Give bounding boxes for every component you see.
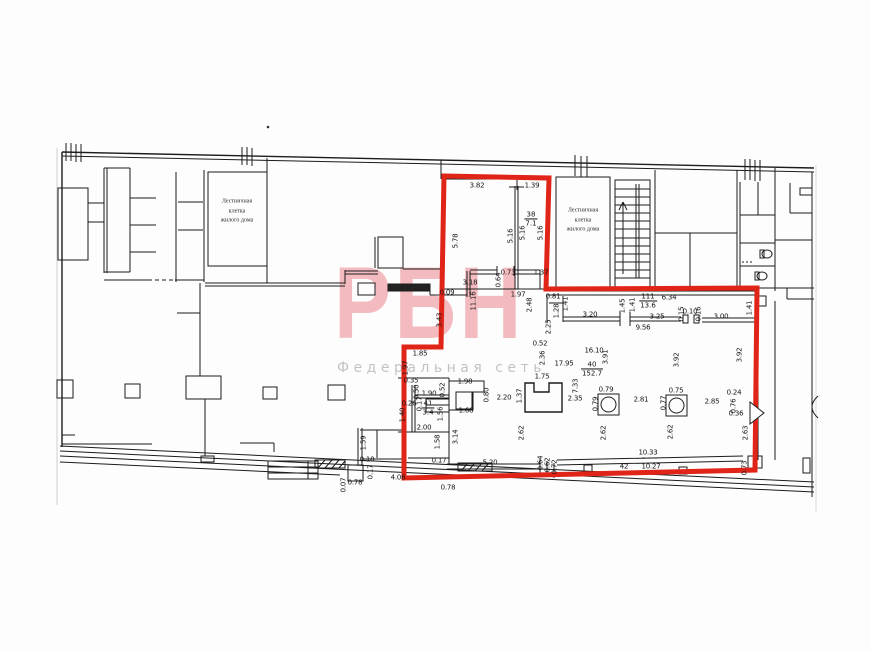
dimension-label: 1.40 bbox=[400, 408, 407, 423]
dimension-label: 10.27 bbox=[641, 464, 660, 471]
dimension-label: 1.41 bbox=[747, 301, 754, 316]
stairwell-label-line: Лестничная bbox=[221, 198, 254, 208]
dimension-label: 1.98 bbox=[458, 379, 473, 386]
dimension-label: 1.41 bbox=[630, 298, 637, 313]
dimension-label: 0.78 bbox=[441, 485, 456, 492]
dimension-label: 0.24 bbox=[727, 390, 742, 397]
dimension-label: 3.82 bbox=[470, 183, 485, 190]
dimension-label: 0.78 bbox=[348, 480, 363, 487]
dimension-label: 2.20 bbox=[497, 395, 512, 402]
dimension-label: 5.16 bbox=[508, 229, 515, 244]
dimension-label: 0.36 bbox=[729, 411, 744, 418]
dimension-label: 5.16 bbox=[520, 226, 527, 241]
dimension-labels-layer: 3.821.395.785.165.165.163.180.0911.160.6… bbox=[0, 0, 870, 652]
dimension-label: 42 bbox=[620, 464, 629, 471]
dimension-label: 1.37 bbox=[534, 270, 549, 277]
room-number: 38 bbox=[524, 210, 537, 219]
dimension-label: 10.33 bbox=[638, 450, 657, 457]
dimension-label: 0.81 bbox=[546, 294, 561, 301]
room-tag: 387.1 bbox=[524, 210, 537, 227]
dimension-label: 0.79 bbox=[599, 387, 614, 394]
room-area: 7.1 bbox=[524, 220, 537, 228]
dimension-label: 0.52 bbox=[440, 383, 447, 398]
dimension-label: 1.37 bbox=[517, 389, 524, 404]
dimension-label: 0.72 bbox=[552, 460, 559, 475]
dimension-label: 0.16 bbox=[696, 307, 703, 322]
stairwell-label: Лестничнаяклеткажилого дома bbox=[221, 198, 254, 227]
room-number: 111 bbox=[639, 292, 657, 301]
room-tag: 11113.6 bbox=[639, 292, 657, 309]
dimension-label: 0.75 bbox=[669, 388, 684, 395]
dimension-label: 2.00 bbox=[417, 425, 432, 432]
dimension-label: 2.81 bbox=[634, 397, 649, 404]
dimension-label: 0.17 bbox=[368, 465, 375, 480]
dimension-label: 0.77 bbox=[661, 396, 668, 411]
dimension-label: 1.41 bbox=[563, 297, 570, 312]
dimension-label: 0.17 bbox=[432, 458, 447, 465]
room-area: 13.6 bbox=[639, 302, 657, 310]
dimension-label: 3.92 bbox=[674, 353, 681, 368]
dimension-label: 5.16 bbox=[538, 226, 545, 241]
dimension-label: 5.78 bbox=[453, 234, 460, 249]
stairwell-label-line: клетка bbox=[567, 216, 600, 226]
stairwell-label-line: клетка bbox=[221, 207, 254, 217]
room-area: 3.4 bbox=[421, 409, 434, 417]
room-tag: 40152.7 bbox=[581, 360, 603, 377]
dimension-label: 1.85 bbox=[413, 351, 428, 358]
dimension-label: 5.20 bbox=[483, 460, 498, 467]
dimension-label: 0.80 bbox=[484, 388, 491, 403]
room-tag: 413.4 bbox=[421, 399, 434, 416]
dimension-label: 0.09 bbox=[440, 290, 455, 297]
dimension-label: 2.25 bbox=[546, 320, 553, 335]
dimension-label: 3.00 bbox=[714, 314, 729, 321]
dimension-label: 6.34 bbox=[662, 295, 677, 302]
dimension-label: 0.18 bbox=[360, 457, 375, 464]
dimension-label: 2.62 bbox=[601, 426, 608, 441]
dimension-label: 1.58 bbox=[435, 435, 442, 450]
scanned-floor-plan: РБН Федеральная сеть bbox=[0, 0, 870, 652]
room-area: 152.7 bbox=[581, 370, 603, 378]
dimension-label: 2.48 bbox=[527, 298, 534, 313]
dimension-label: 0.26 bbox=[402, 401, 417, 408]
dimension-label: 2.36 bbox=[540, 351, 547, 366]
dimension-label: 3.43 bbox=[437, 313, 444, 328]
dimension-label: 0.73 bbox=[742, 461, 749, 476]
dimension-label: 0.07 bbox=[341, 478, 348, 493]
dimension-label: 3.18 bbox=[463, 280, 478, 287]
dimension-label: 1.97 bbox=[511, 292, 526, 299]
dimension-label: 2.62 bbox=[519, 426, 526, 441]
dimension-label: 1.28 bbox=[554, 304, 561, 319]
dimension-label: 3.92 bbox=[737, 348, 744, 363]
dimension-label: 2.63 bbox=[743, 426, 750, 441]
dimension-label: 1.75 bbox=[535, 374, 550, 381]
stairwell-label-line: Лестничная bbox=[567, 207, 600, 217]
dimension-label: 0.52 bbox=[533, 341, 548, 348]
dimension-label: 1.97 bbox=[403, 361, 410, 376]
dimension-label: 2.35 bbox=[568, 396, 583, 403]
dimension-label: 1.90 bbox=[422, 391, 437, 398]
dimension-label: 17.95 bbox=[554, 361, 573, 368]
dimension-label: 2.62 bbox=[668, 425, 675, 440]
dimension-label: 0.73 bbox=[501, 270, 516, 277]
dimension-label: 3.25 bbox=[650, 314, 665, 321]
dimension-label: 7.33 bbox=[573, 379, 580, 394]
dimension-label: 3.91 bbox=[603, 350, 610, 365]
dimension-label: 3.14 bbox=[453, 430, 460, 445]
stairwell-label-line: жилого дома bbox=[567, 226, 600, 236]
dimension-label: 3.20 bbox=[583, 312, 598, 319]
dimension-label: 1.45 bbox=[620, 299, 627, 314]
room-number: 40 bbox=[581, 360, 603, 369]
dimension-label: 1.68 bbox=[459, 408, 474, 415]
dimension-label: 11.16 bbox=[471, 291, 478, 310]
dimension-label: 9.56 bbox=[636, 325, 651, 332]
dimension-label: 2.85 bbox=[705, 399, 720, 406]
dimension-label: 1.56 bbox=[438, 407, 445, 422]
room-number: 41 bbox=[421, 399, 434, 408]
dimension-label: 1.59 bbox=[361, 436, 368, 451]
dimension-label: 4.06 bbox=[391, 475, 406, 482]
stairwell-label: Лестничнаяклеткажилого дома bbox=[567, 207, 600, 236]
dimension-label: 0.79 bbox=[593, 397, 600, 412]
dimension-label: 1.39 bbox=[525, 183, 540, 190]
dimension-label: 0.35 bbox=[404, 378, 419, 385]
stairwell-label-line: жилого дома bbox=[221, 217, 254, 227]
